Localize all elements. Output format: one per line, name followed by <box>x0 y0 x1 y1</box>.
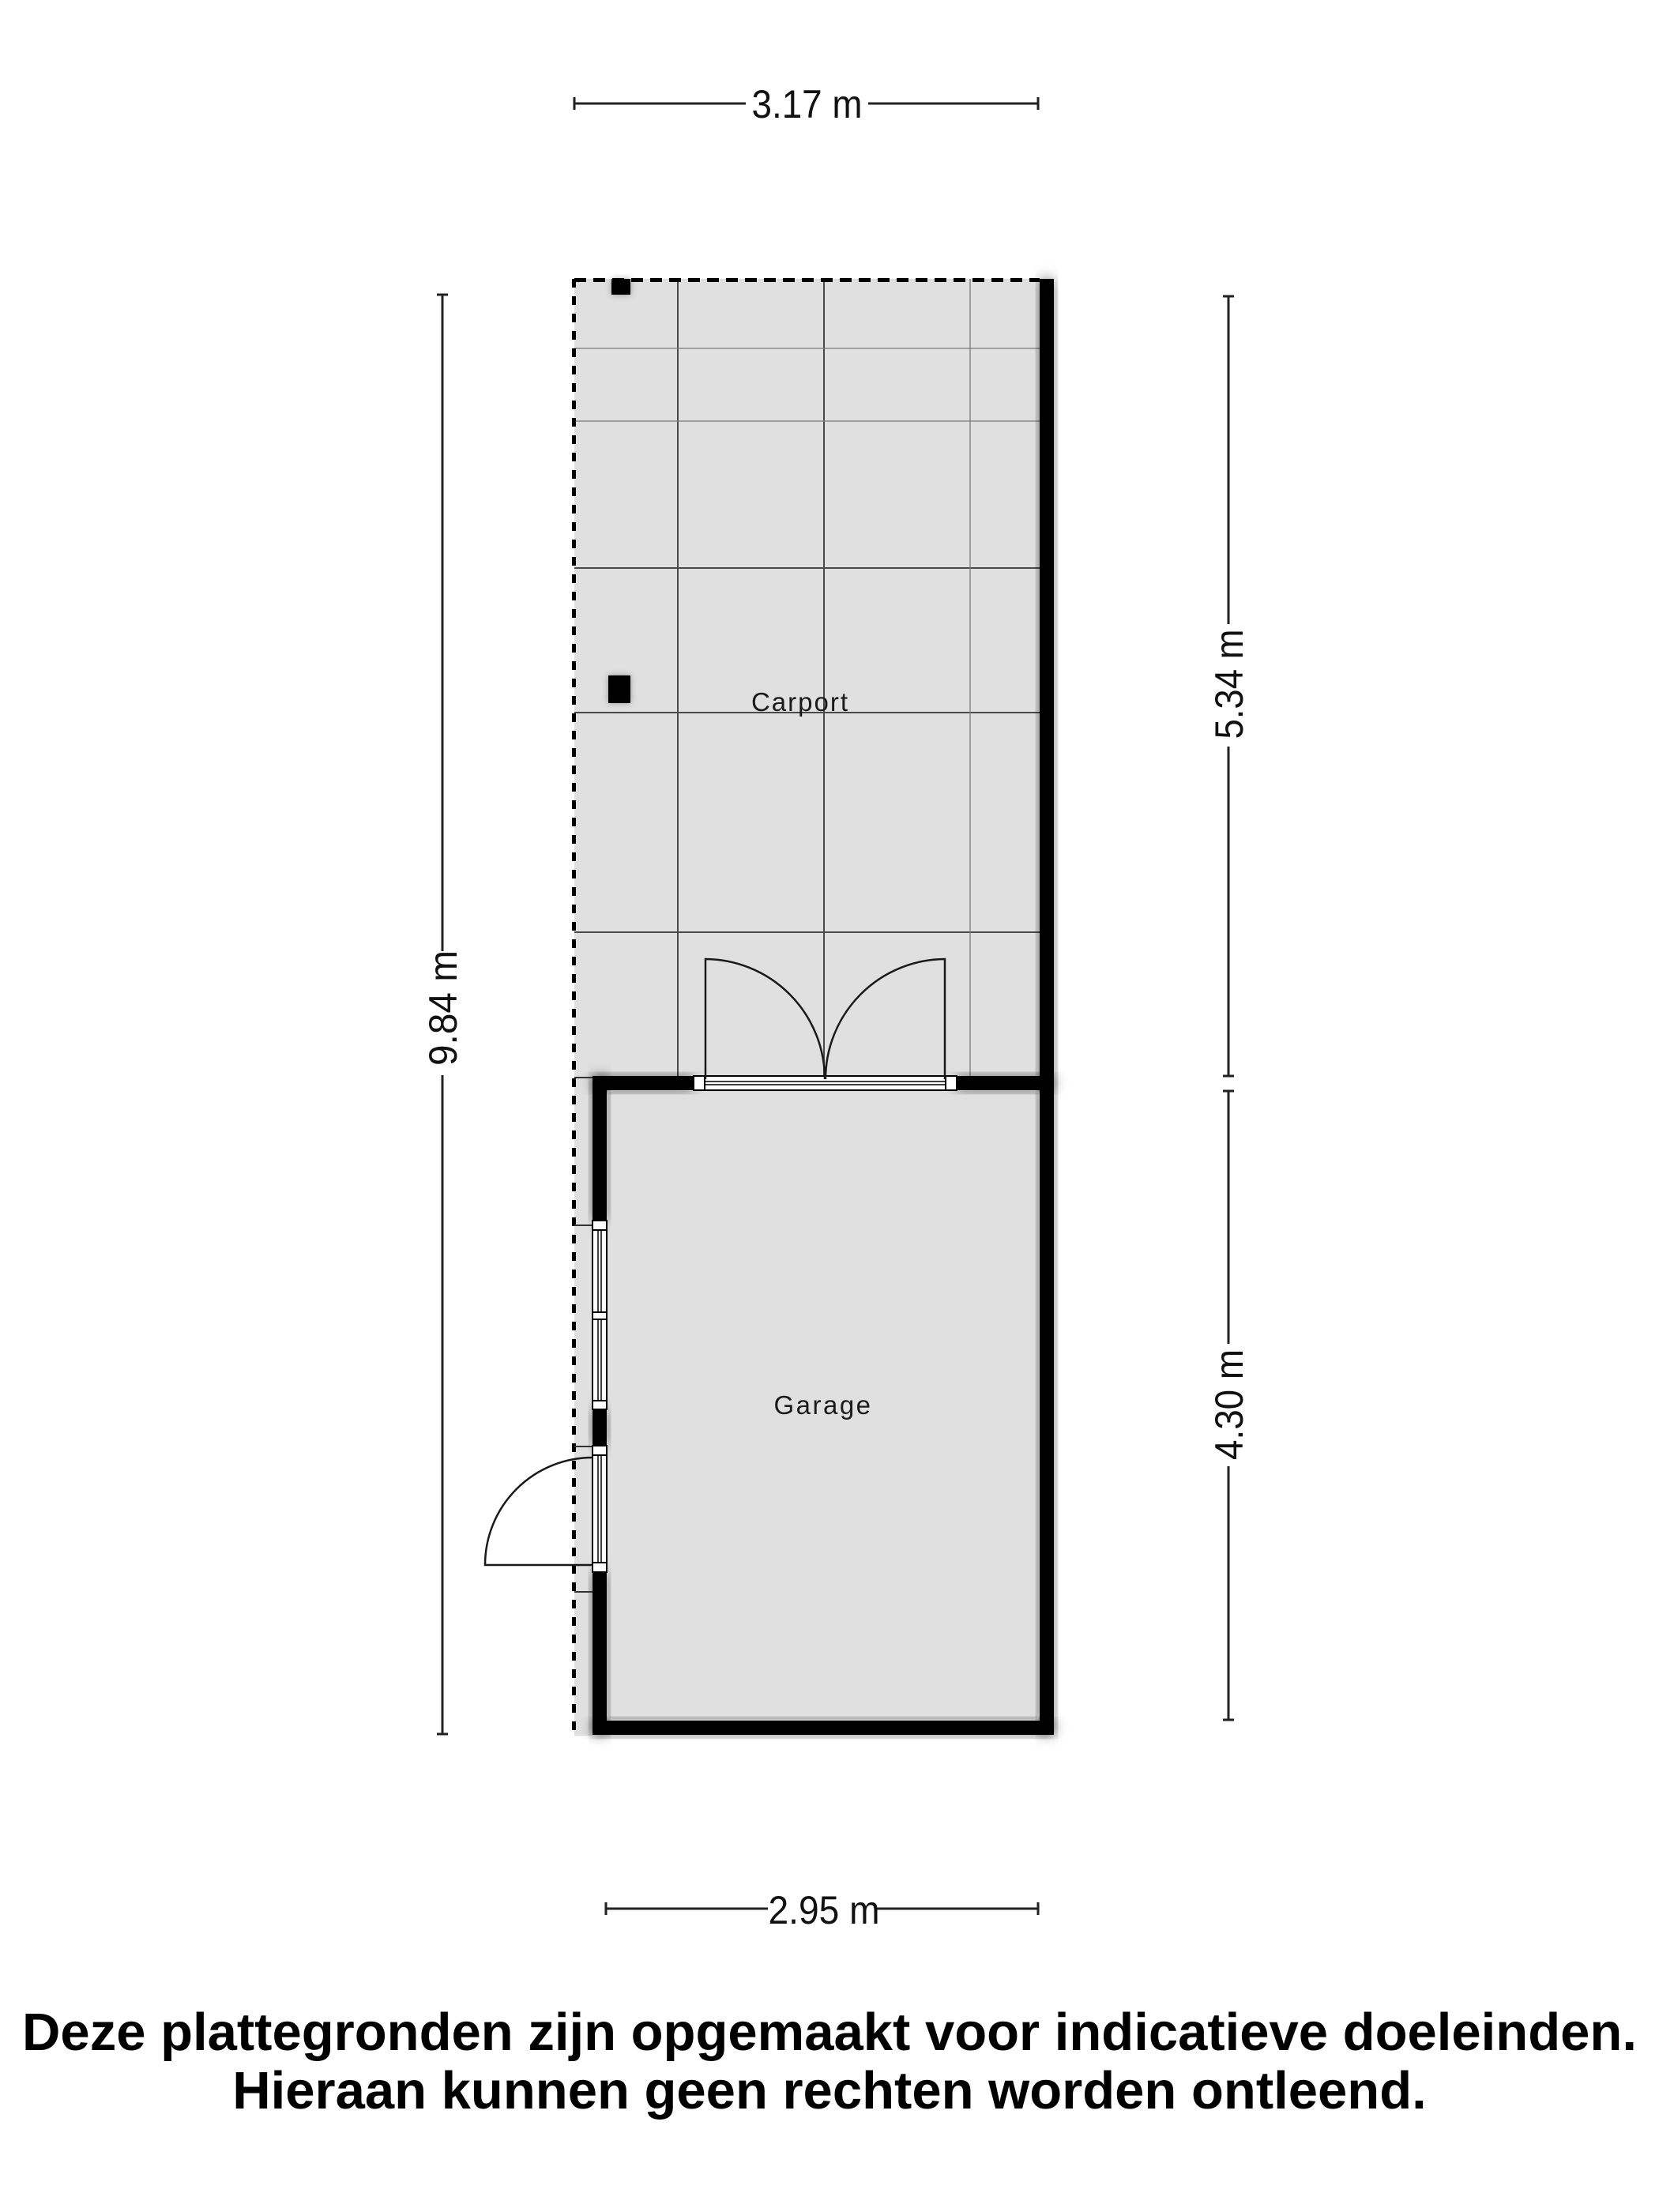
svg-text:Deze plattegronden zijn opgema: Deze plattegronden zijn opgemaakt voor i… <box>22 2003 1637 2062</box>
svg-text:4.30 m: 4.30 m <box>1207 1349 1251 1460</box>
svg-text:3.17 m: 3.17 m <box>752 82 863 126</box>
svg-text:Garage: Garage <box>773 1390 872 1420</box>
svg-text:Carport: Carport <box>751 687 849 717</box>
svg-text:5.34 m: 5.34 m <box>1207 630 1251 739</box>
svg-text:Hieraan kunnen geen rechten wo: Hieraan kunnen geen rechten worden ontle… <box>232 2061 1427 2120</box>
svg-text:2.95 m: 2.95 m <box>769 1888 880 1932</box>
svg-text:9.84 m: 9.84 m <box>421 950 465 1066</box>
